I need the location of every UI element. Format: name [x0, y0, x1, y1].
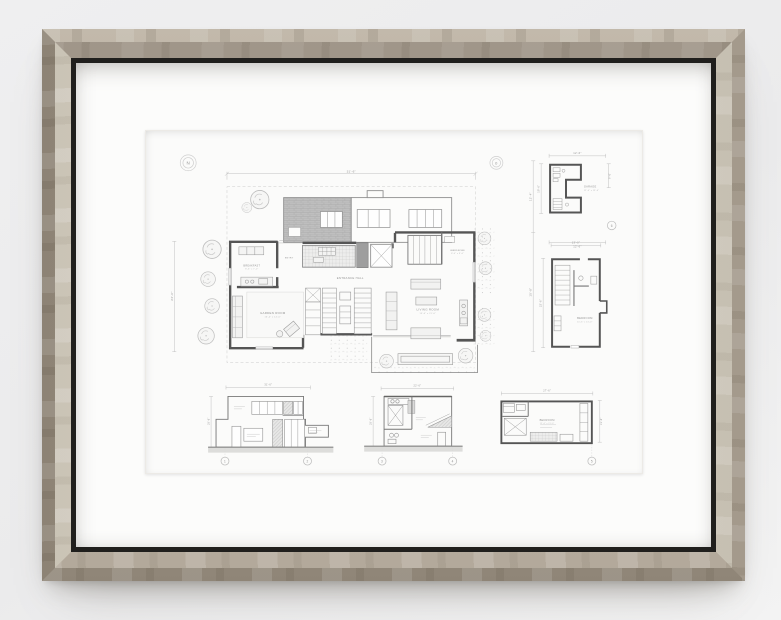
svg-text:8'-0" x 9'-6": 8'-0" x 9'-6": [451, 253, 464, 255]
utility-core: [357, 243, 368, 268]
svg-text:GARAGE: GARAGE: [584, 185, 597, 189]
svg-text:8'-6" x 7'-0": 8'-6" x 7'-0": [245, 269, 258, 271]
ground-band: [208, 447, 333, 452]
ground-band: [364, 446, 462, 451]
grid-bubbles: 5: [588, 444, 596, 465]
roof-volume: [284, 191, 452, 243]
garage-bubble: 6: [607, 221, 616, 230]
svg-text:9'-6": 9'-6": [608, 173, 612, 179]
svg-text:15'-0" x 21'-6": 15'-0" x 21'-6": [420, 313, 437, 315]
svg-text:ENTRY: ENTRY: [285, 257, 294, 259]
architectural-drawing: N 0 31'-6" 24'-0" 12'-4" 15'-8": [146, 131, 642, 473]
svg-text:BEDROOM: BEDROOM: [540, 418, 555, 422]
svg-text:12'-6": 12'-6": [573, 151, 581, 155]
svg-text:24'-0": 24'-0": [170, 291, 174, 300]
terrace-table: [398, 354, 453, 365]
main-floor-plan: 31'-6" 24'-0" 12'-4" 15'-8": [170, 161, 535, 373]
svg-text:3: 3: [381, 459, 383, 463]
svg-text:12'-6" x 21'-0": 12'-6" x 21'-0": [540, 423, 555, 425]
bedroom-fittings: [554, 265, 597, 348]
svg-text:LIVING ROOM: LIVING ROOM: [417, 307, 440, 311]
svg-text:BREAKFAST: BREAKFAST: [243, 265, 260, 268]
svg-text:18'-6": 18'-6": [207, 418, 210, 426]
elevation-1: 31'-6" 18'-6" 1 2: [207, 384, 333, 465]
svg-text:4: 4: [452, 459, 454, 463]
svg-text:16'-4" x 14'-0": 16'-4" x 14'-0": [264, 317, 281, 319]
blueprint-sheet: N 0 31'-6" 24'-0" 12'-4" 15'-8": [145, 130, 643, 474]
bedroom-plan: 13'-0" 22'-6" BEDROOM 10'-6" x 13'-0": [538, 241, 606, 348]
sheet-marker: 0: [490, 156, 503, 169]
frame-inner-lip: N 0 31'-6" 24'-0" 12'-4" 15'-8": [71, 58, 716, 552]
svg-text:6: 6: [611, 224, 613, 228]
svg-text:2: 2: [306, 459, 308, 463]
svg-text:13'-6": 13'-6": [600, 418, 603, 426]
svg-text:0: 0: [495, 160, 498, 165]
svg-text:1: 1: [224, 459, 226, 463]
upper-floor-plan: 27'-6" 13'-6" BEDROOM 12'-6" x 21'-0" 5: [501, 390, 603, 465]
stair-hall: [306, 288, 372, 335]
svg-text:10'-6" x 13'-0": 10'-6" x 13'-0": [577, 321, 592, 323]
upper-windows: [320, 210, 441, 228]
garage-plan: 12'-6" 19'-0" 9'-6" 12'-6" GARAGE 12'-0"…: [536, 151, 616, 248]
svg-text:18'-6": 18'-6": [369, 418, 372, 426]
kitchen-island: [303, 245, 356, 267]
svg-text:BEDROOM: BEDROOM: [577, 316, 593, 320]
svg-text:ENTRANCE HALL: ENTRANCE HALL: [337, 276, 364, 280]
svg-text:22'-6": 22'-6": [413, 385, 421, 388]
wardrobe-area: [408, 232, 455, 264]
svg-text:12'-0" x 19'-6": 12'-0" x 19'-6": [584, 190, 599, 192]
svg-text:27'-6": 27'-6": [543, 390, 551, 393]
svg-text:13'-0": 13'-0": [572, 241, 580, 245]
svg-text:31'-6": 31'-6": [264, 384, 272, 387]
svg-text:N: N: [186, 161, 189, 166]
svg-text:22'-6": 22'-6": [538, 299, 542, 307]
svg-text:5: 5: [591, 459, 593, 463]
north-marker: N: [180, 155, 196, 171]
mat-board: N 0 31'-6" 24'-0" 12'-4" 15'-8": [76, 63, 711, 547]
svg-text:12'-4": 12'-4": [529, 192, 533, 201]
svg-text:31'-6": 31'-6": [347, 169, 356, 173]
svg-text:15'-8": 15'-8": [529, 288, 533, 297]
picture-frame: N 0 31'-6" 24'-0" 12'-4" 15'-8": [42, 29, 745, 581]
section-drawing: 22'-6" 18'-6" 3 4: [364, 385, 462, 465]
svg-text:GARDEN ROOM: GARDEN ROOM: [260, 311, 286, 315]
svg-text:WARDROBE: WARDROBE: [450, 249, 465, 252]
svg-text:19'-0": 19'-0": [536, 185, 540, 193]
svg-text:12'-6": 12'-6": [573, 244, 581, 248]
skylight: [371, 244, 392, 267]
